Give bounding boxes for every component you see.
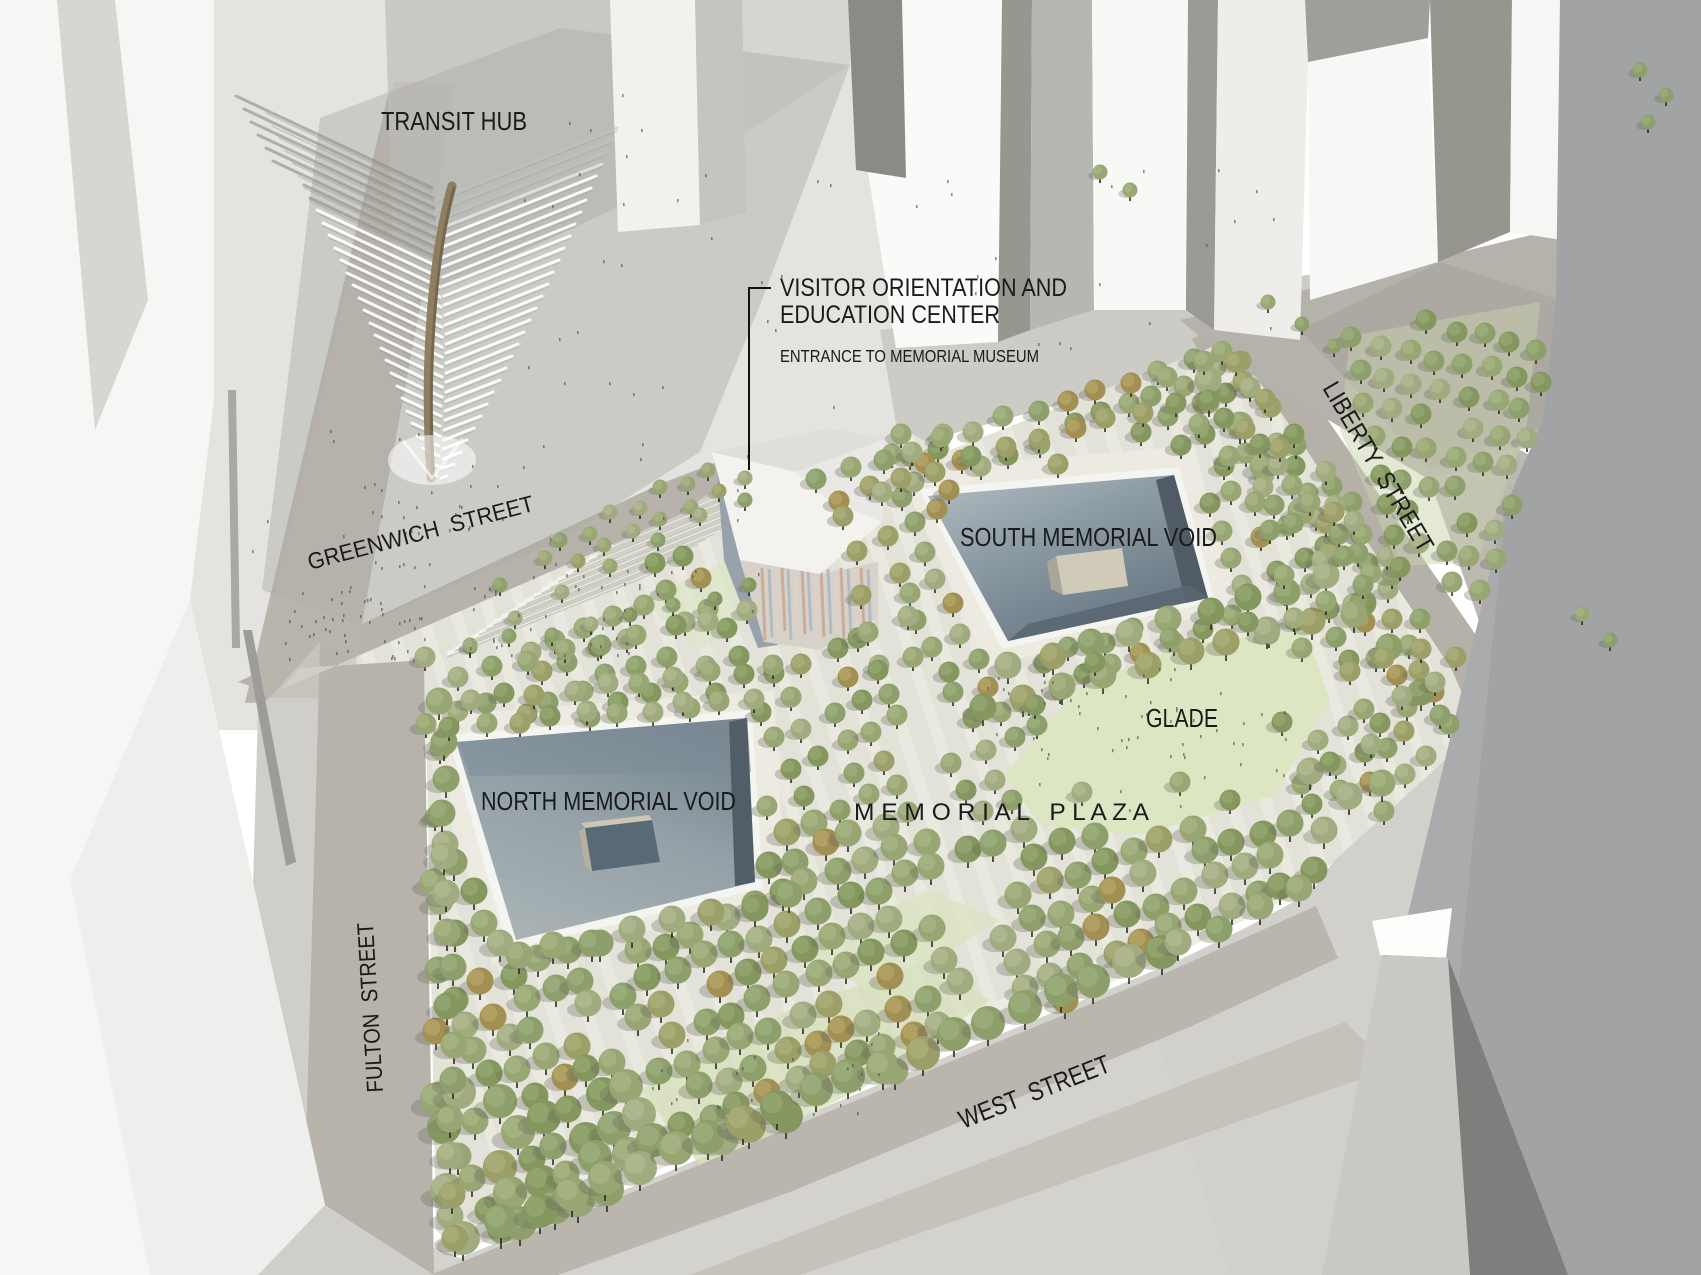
svg-text:ENTRANCE TO MEMORIAL MUSEUM: ENTRANCE TO MEMORIAL MUSEUM [780,346,1039,366]
svg-text:SOUTH MEMORIAL VOID: SOUTH MEMORIAL VOID [960,522,1217,552]
svg-text:M E M O R I A L P L A Z A: M E M O R I A L P L A Z A [854,799,1149,826]
svg-text:GLADE: GLADE [1146,703,1218,733]
svg-text:NORTH MEMORIAL VOID: NORTH MEMORIAL VOID [481,786,736,816]
svg-text:VISITOR ORIENTATION AND: VISITOR ORIENTATION AND [780,274,1067,302]
svg-text:TRANSIT HUB: TRANSIT HUB [381,106,527,136]
svg-text:EDUCATION CENTER: EDUCATION CENTER [780,301,1000,329]
